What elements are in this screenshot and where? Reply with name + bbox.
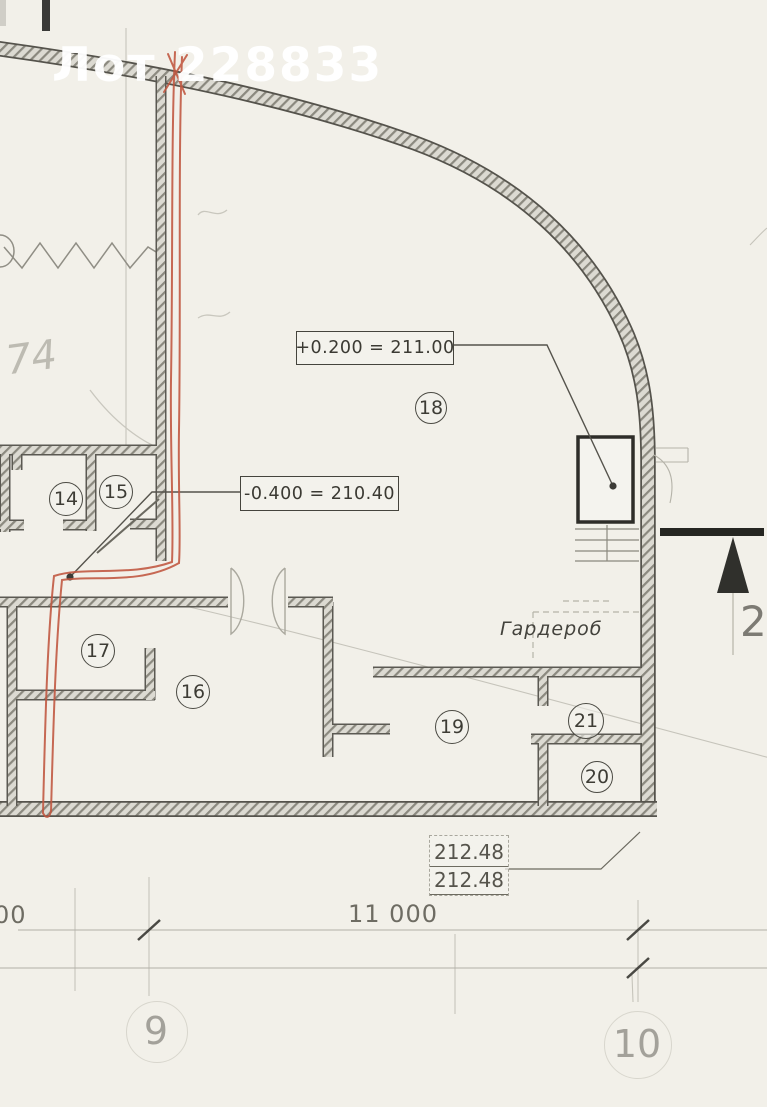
stairs	[575, 525, 639, 561]
room-label-20: 20	[581, 761, 613, 793]
scan-smudge	[0, 0, 6, 26]
room-label-19: 19	[435, 710, 469, 744]
axis-label-10: 10	[604, 1011, 670, 1077]
room-label-18: 18	[415, 392, 447, 424]
double-door	[231, 568, 285, 634]
wardrobe-label: Гардероб	[500, 618, 603, 640]
elevation-label-lower: -0.400 = 210.40	[240, 476, 399, 511]
floor-plan-scan: Лот 228833 +0.200 = 211.00 -0.400 = 210.…	[0, 0, 767, 1107]
room-label-16: 16	[176, 675, 210, 709]
dimension-lines	[0, 920, 767, 978]
room-label-15: 15	[99, 475, 133, 509]
shaft-box	[578, 437, 633, 522]
level-value-top: 212.48	[430, 839, 508, 867]
break-line	[0, 235, 161, 268]
dimension-partial-left: 00	[0, 901, 27, 929]
edge-mark	[42, 0, 50, 31]
interior-walls	[0, 76, 642, 806]
dimension-overall: 11 000	[348, 900, 438, 928]
watermark-text: Лот 228833	[52, 38, 383, 93]
level-values-box: 212.48 212.48	[429, 835, 509, 896]
handwritten-note: 74	[3, 332, 60, 385]
exterior-marks	[654, 448, 688, 503]
plan-linework	[0, 0, 767, 1107]
level-value-bottom: 212.48	[430, 867, 508, 895]
elevation-label-upper: +0.200 = 211.00	[296, 331, 454, 365]
room-label-14: 14	[49, 482, 83, 516]
axis-label-9: 9	[126, 1001, 186, 1061]
room-label-21: 21	[568, 703, 604, 739]
section-mark-number: 2	[740, 597, 767, 646]
room-label-17: 17	[81, 634, 115, 668]
